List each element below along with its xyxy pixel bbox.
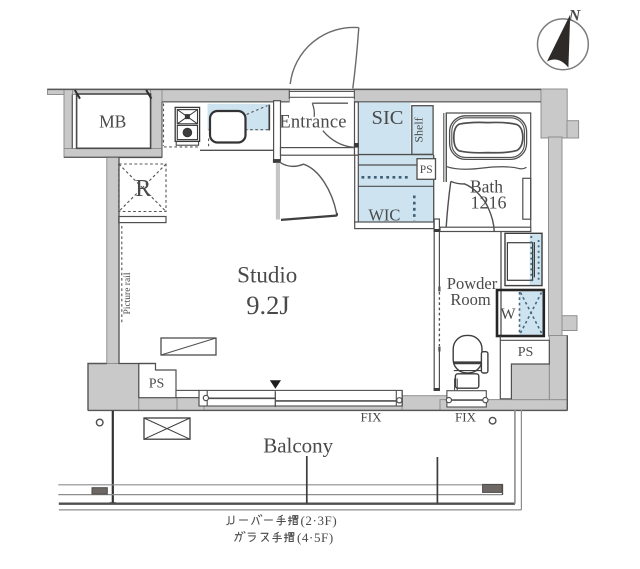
svg-text:FIX: FIX — [361, 410, 383, 425]
svg-text:SIC: SIC — [372, 107, 404, 129]
svg-text:Room: Room — [450, 290, 491, 309]
svg-text:N: N — [568, 8, 582, 25]
svg-text:W: W — [500, 306, 516, 323]
svg-text:Entrance: Entrance — [279, 113, 346, 133]
svg-text:Studio: Studio — [237, 263, 297, 288]
svg-text:Balcony: Balcony — [263, 434, 333, 458]
svg-text:R: R — [135, 176, 151, 202]
svg-text:WIC: WIC — [368, 206, 400, 225]
svg-text:MB: MB — [99, 112, 126, 132]
svg-text:9.2J: 9.2J — [246, 290, 289, 320]
svg-text:Picture rail: Picture rail — [123, 272, 133, 314]
svg-text:PS: PS — [420, 164, 433, 176]
svg-text:PS: PS — [149, 376, 165, 391]
svg-text:Shelf: Shelf — [412, 117, 426, 142]
svg-text:(4·5F): (4·5F) — [297, 530, 334, 545]
svg-text:PS: PS — [518, 345, 534, 360]
svg-text:FIX: FIX — [455, 410, 477, 425]
svg-text:1216: 1216 — [471, 193, 507, 213]
svg-text:(2·3F): (2·3F) — [301, 513, 338, 528]
